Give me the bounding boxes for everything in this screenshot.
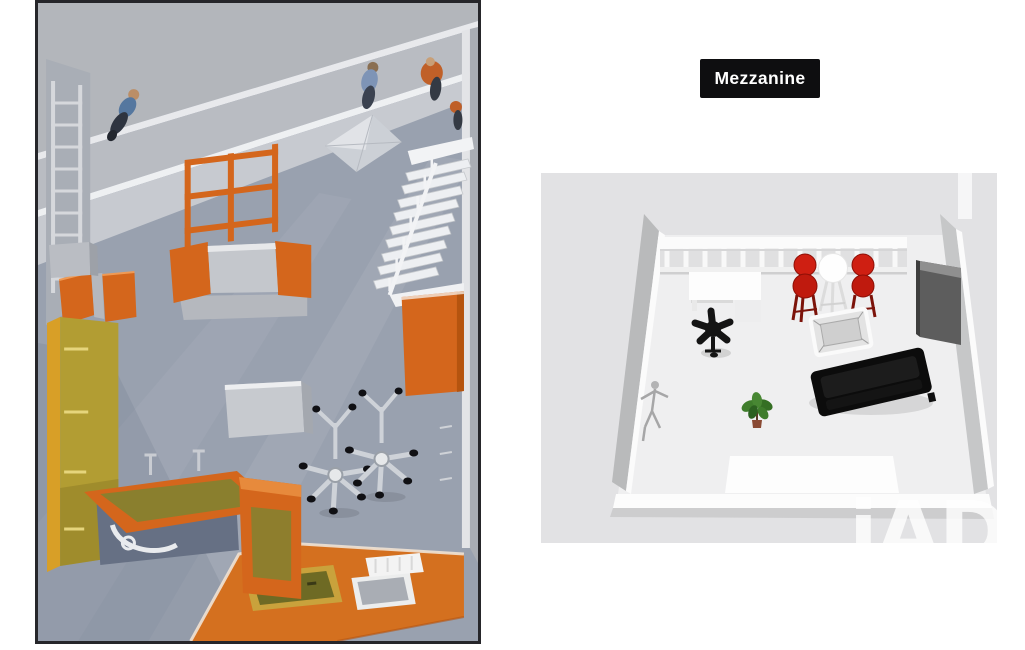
coffee-table (810, 308, 872, 355)
interior-photo-3d-render (35, 0, 481, 644)
gray-box (49, 242, 98, 278)
mezzanine-floorplan-panel: iAD (541, 173, 997, 543)
mezzanine-label: Mezzanine (700, 59, 820, 98)
desk-unit (170, 241, 312, 320)
understair-orange-wall (402, 291, 464, 396)
dark-cabinet (916, 260, 961, 345)
interior-render-graphic (38, 3, 478, 641)
listing-screenshot: { "page": { "background": "#ffffff" }, "… (0, 0, 1025, 650)
brand-watermark: iAD (849, 483, 997, 543)
storage-cube (225, 381, 313, 438)
mezzanine-floorplan-graphic: iAD (541, 173, 997, 543)
orange-lockers (59, 272, 136, 325)
